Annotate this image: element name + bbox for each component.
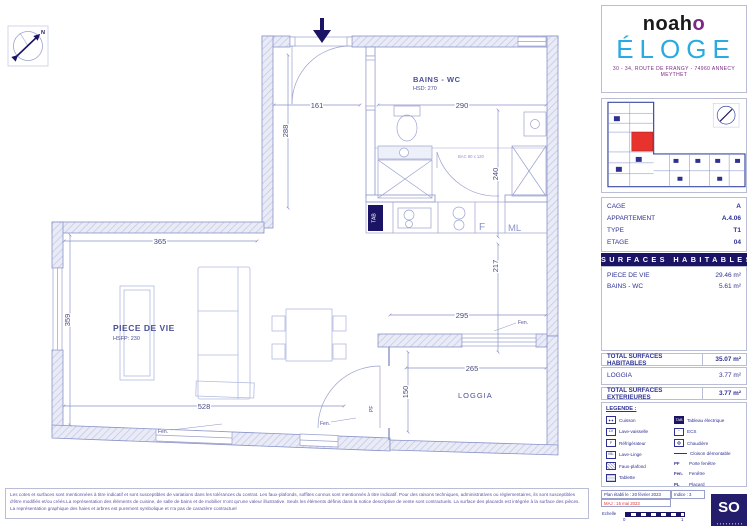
table-row: TYPET1 (602, 225, 746, 237)
total-habitables-row: TOTAL SURFACES HABITABLES 35.07 m² (601, 353, 747, 366)
legend-item: Faux-plafond (606, 462, 674, 470)
highlighted-unit (632, 132, 653, 151)
scale-end-label: 1 (681, 517, 683, 522)
room-label-pdv: PIECE DE VIE (113, 323, 175, 333)
room-height-pdv: HSFP: 230 (113, 336, 140, 342)
window-label-3: Fen. (518, 320, 528, 326)
tab-label: TAB (372, 213, 378, 223)
legend-item: Tablette (606, 474, 674, 482)
key-plan-compass-icon (713, 103, 739, 127)
window-label-1: Fen. (158, 429, 168, 435)
table-row: PIECE DE VIE29.46 m² (602, 270, 746, 281)
legend-item: Chaudière (674, 439, 742, 447)
shower-tray-label: BAC 80 x 120 (458, 154, 485, 159)
french-door-abbr: PF (674, 459, 686, 467)
doors-and-windows (53, 37, 546, 447)
plan-sheet: TAB F ML (0, 0, 750, 530)
svg-text:359: 359 (63, 314, 72, 327)
disclaimer-line: Les cotes et surfaces sont mentionnées à… (10, 492, 538, 497)
noaho-logo: noaho (602, 13, 746, 35)
revision-index: Indice : 3 (671, 490, 705, 499)
svg-text:365: 365 (154, 237, 167, 246)
svg-text:217: 217 (491, 260, 500, 273)
surfaces-habitables-header: SURFACES HABITABLES (601, 253, 747, 266)
door-label-pf: PF (369, 406, 375, 412)
table-row: LOGGIA3.77 m² (602, 370, 746, 381)
hot-water-icon: ~ (674, 428, 684, 436)
table-row: APPARTEMENTA.4.06 (602, 213, 746, 225)
brand-block: noaho ÉLOGE 30 - 34, ROUTE DE FRANGY - 7… (601, 5, 747, 93)
legend-item: Cloison démontable (674, 451, 742, 456)
table-row: ETAGE04 (602, 237, 746, 249)
svg-text:295: 295 (456, 311, 469, 320)
scale-label: Echelle (602, 511, 616, 516)
svg-text:150: 150 (401, 386, 410, 399)
table-row: BAINS - WC5.61 m² (602, 281, 746, 292)
legend: LEGENDE : Cuisson LVLave-vaisselle FRéfr… (601, 402, 747, 487)
legal-disclaimer: Les cotes et surfaces sont mentionnées à… (5, 488, 589, 519)
update-date: MAJ : 15 mai 2023 (601, 499, 671, 507)
surfaces-exterieures-table: LOGGIA3.77 m² (601, 367, 747, 385)
window-abbr: Fen. (674, 470, 686, 478)
partition-line-icon (674, 453, 687, 454)
room-label-loggia: LOGGIA (458, 391, 493, 400)
fridge-label: F (479, 222, 485, 233)
apartment-info-table: CAGEA APPARTEMENTA.4.06 TYPET1 ETAGE04 (601, 197, 747, 252)
legend-item: Fen.Fenêtre (674, 470, 742, 478)
legend-title: LEGENDE : (606, 406, 742, 412)
legend-item: PLPlacard (674, 480, 742, 488)
room-height-bains: HSD: 270 (413, 86, 437, 92)
closet-abbr: PL (674, 480, 686, 488)
architect-logo-caption (711, 521, 747, 526)
key-plan-drawing (602, 99, 746, 192)
scale-bar (625, 512, 685, 517)
svg-text:161: 161 (311, 101, 324, 110)
project-title: ÉLOGE (606, 35, 746, 63)
legend-item: LVLave-vaisselle (606, 428, 674, 436)
fridge-icon: F (606, 439, 616, 447)
legend-item: ~ECS (674, 428, 742, 436)
shelf-icon (606, 474, 616, 482)
surfaces-table: PIECE DE VIE29.46 m² BAINS - WC5.61 m² (601, 266, 747, 351)
noaho-logo-dot: o (693, 13, 706, 35)
bathroom-fixtures (378, 106, 546, 198)
room-labels: BAINS - WC HSD: 270 PIECE DE VIE HSFP: 2… (113, 75, 528, 435)
svg-text:290: 290 (456, 101, 469, 110)
project-address: 30 - 34, ROUTE DE FRANGY - 74960 ANNECY … (602, 66, 746, 78)
dishwasher-icon: LV (606, 428, 616, 436)
floorplan-drawing: TAB F ML (0, 0, 598, 486)
legend-item: MLLave-Linge (606, 451, 674, 459)
right-panel: noaho ÉLOGE 30 - 34, ROUTE DE FRANGY - 7… (600, 0, 748, 530)
furniture (120, 267, 346, 399)
key-plan (601, 98, 747, 193)
title-block: Plan établi le : 20 février 2023 Indice … (601, 490, 747, 528)
north-label: N (41, 30, 45, 36)
total-exterieures-row: TOTAL SURFACES EXTERIEURES 3.77 m² (601, 387, 747, 400)
svg-text:288: 288 (281, 125, 290, 138)
legend-item: FRéfrigérateur (606, 439, 674, 447)
legend-item: TABTableau électrique (674, 416, 742, 424)
window-label-2: Fen. (320, 421, 330, 427)
cooktop-icon (606, 416, 616, 424)
plan-date: Plan établi le : 20 février 2023 (601, 490, 671, 499)
architect-logo: SO (711, 494, 747, 521)
false-ceiling-icon (606, 462, 616, 470)
dimension-lines (64, 55, 546, 432)
boiler-icon (674, 439, 684, 447)
legend-item: PFPorte fenêtre (674, 459, 742, 467)
washer-label: ML (508, 223, 521, 234)
legend-right-column: TABTableau électrique ~ECS Chaudière Clo… (674, 416, 742, 491)
svg-text:528: 528 (198, 402, 211, 411)
room-label-bains: BAINS - WC (413, 75, 461, 84)
scale-start-label: 0 (623, 517, 625, 522)
electrical-panel-icon: TAB (674, 416, 684, 424)
washer-icon: ML (606, 451, 616, 459)
dimension-labels: 161 290 288 240 365 217 295 359 528 265 … (63, 101, 500, 411)
svg-text:240: 240 (491, 168, 500, 181)
compass-icon: N (8, 26, 48, 66)
legend-item: Cuisson (606, 416, 674, 424)
legend-left-column: Cuisson LVLave-vaisselle FRéfrigérateur … (606, 416, 674, 491)
svg-text:265: 265 (466, 364, 479, 373)
table-row: CAGEA (602, 201, 746, 213)
